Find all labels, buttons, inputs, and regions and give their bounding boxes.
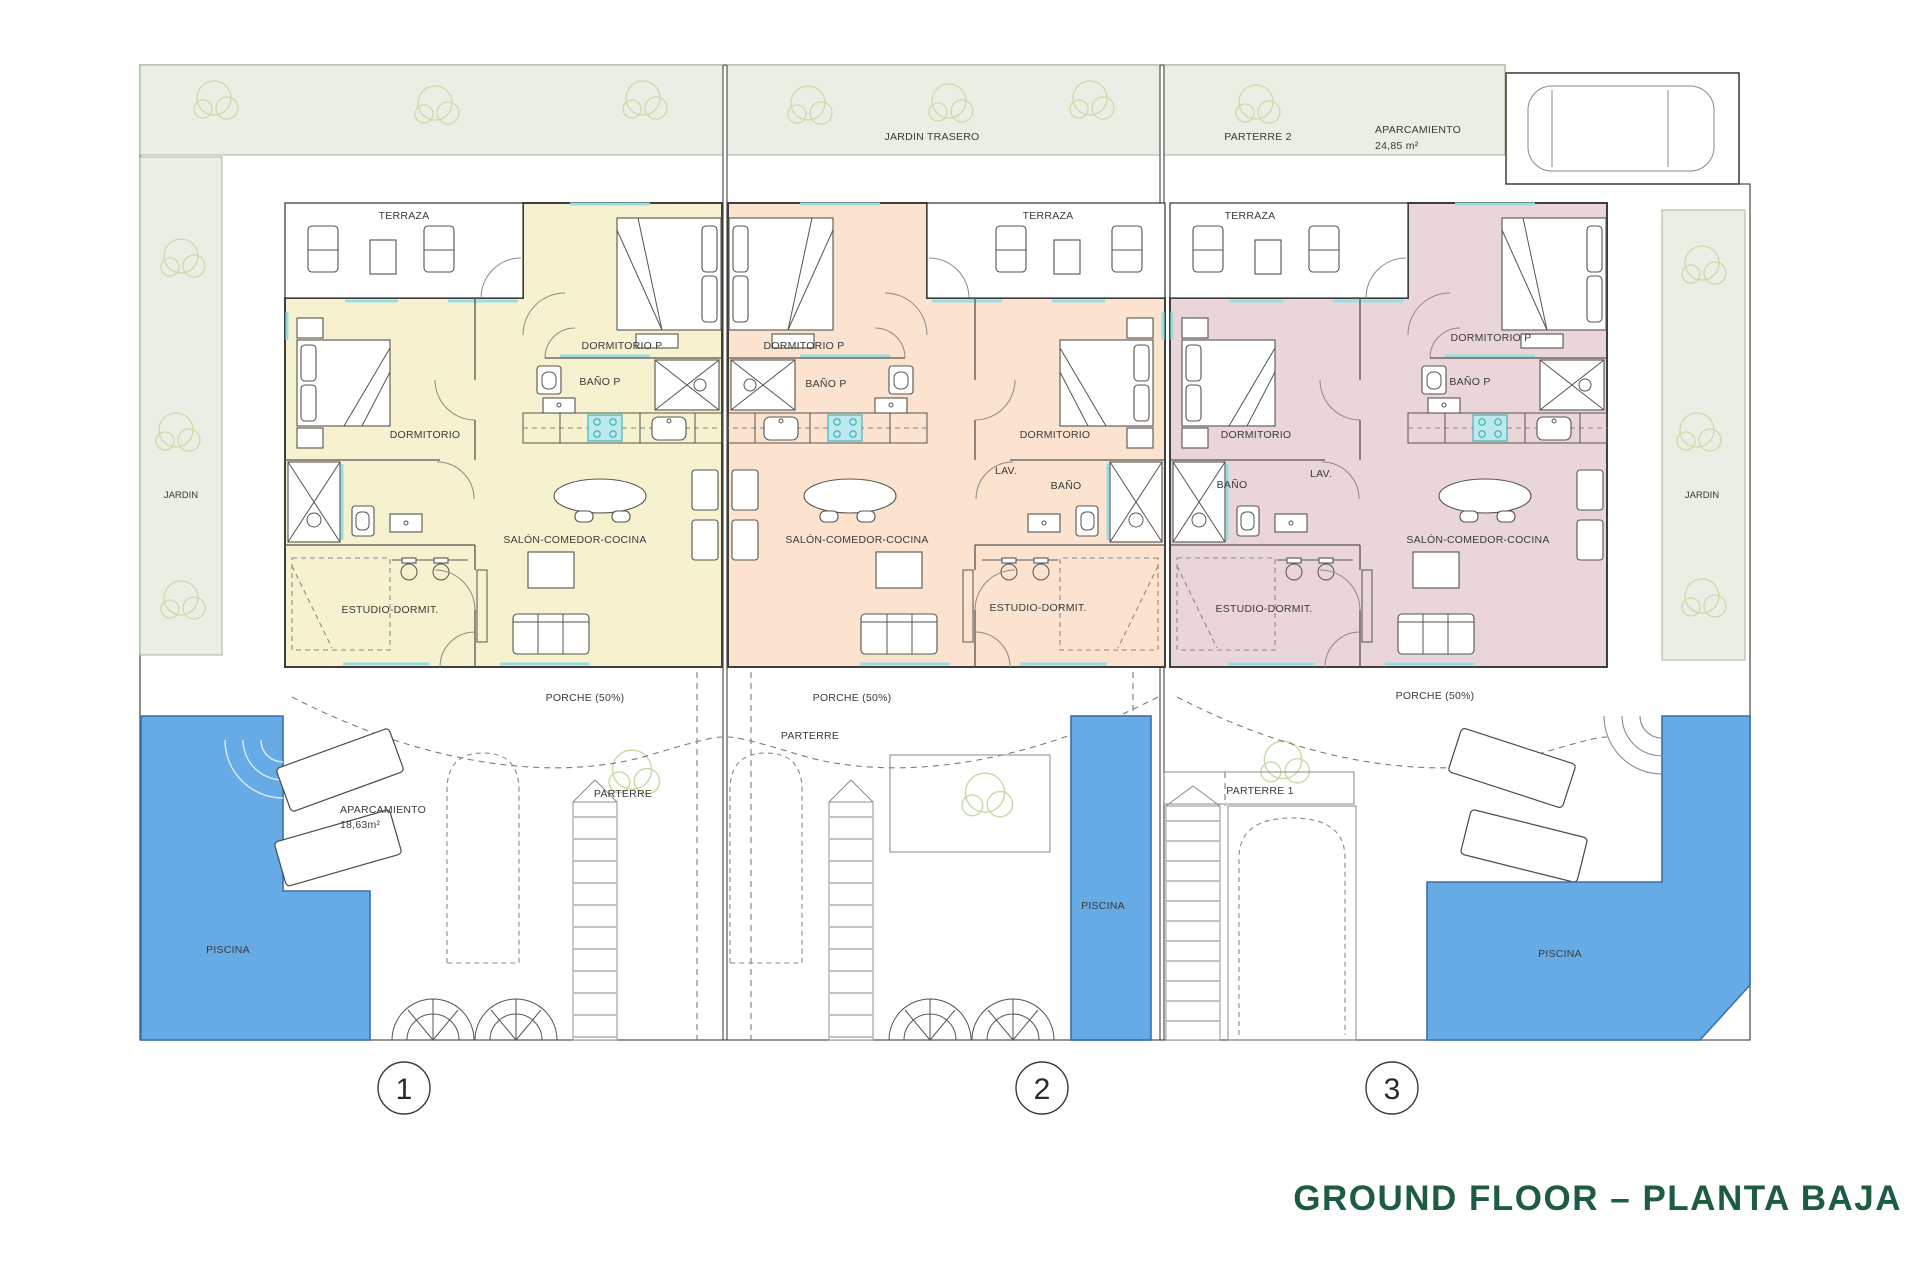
car-outline-icon <box>730 753 802 963</box>
unit-numbers: 1 2 3 <box>378 1062 1418 1114</box>
parterre-bed <box>890 755 1050 852</box>
piscina-label: PISCINA <box>1538 948 1582 960</box>
aparcamiento-1-label: APARCAMIENTO <box>340 804 426 816</box>
bano-p-label: BAÑO P <box>1449 375 1490 388</box>
driveway <box>1228 806 1356 1040</box>
bano-p-label: BAÑO P <box>805 377 846 390</box>
entrance-fan-ornament <box>889 999 1054 1040</box>
porche-label: PORCHE (50%) <box>1396 690 1475 702</box>
dormitorio-label: DORMITORIO <box>1020 429 1091 441</box>
parterre-1-label: PARTERRE 1 <box>1226 785 1293 797</box>
piscina-label: PISCINA <box>1081 900 1125 912</box>
garden-left <box>140 157 222 655</box>
parked-car-icon <box>1448 728 1576 809</box>
salon-label: SALÓN-COMEDOR-COCINA <box>785 533 928 546</box>
unit-2-house <box>728 203 1165 768</box>
unit-2-front <box>730 716 1151 1040</box>
porche-label: PORCHE (50%) <box>546 692 625 704</box>
parterre-2-label: PARTERRE 2 <box>1224 131 1291 143</box>
porche-label: PORCHE (50%) <box>813 692 892 704</box>
estudio-label: ESTUDIO-DORMIT. <box>341 604 438 616</box>
unit-1-number: 1 <box>396 1073 413 1106</box>
bano-label: BAÑO <box>1217 478 1248 491</box>
aparcamiento-3-label: APARCAMIENTO <box>1375 124 1461 136</box>
bano-label: BAÑO <box>1051 479 1082 492</box>
parked-car-icon <box>1460 809 1588 883</box>
estudio-label: ESTUDIO-DORMIT. <box>1215 603 1312 615</box>
terraza-label: TERRAZA <box>1023 210 1074 222</box>
walkway <box>573 802 617 1040</box>
terraza-label: TERRAZA <box>379 210 430 222</box>
lavadero-label: LAV. <box>1310 468 1332 480</box>
dormitorio-p-label: DORMITORIO P <box>1451 332 1532 344</box>
parked-car-icon <box>276 728 404 812</box>
entrance-fan-ornament <box>392 999 557 1040</box>
dormitorio-label: DORMITORIO <box>1221 429 1292 441</box>
parking-spot-3 <box>1506 73 1739 184</box>
salon-label: SALÓN-COMEDOR-COCINA <box>1406 533 1549 546</box>
unit-2-number: 2 <box>1034 1073 1051 1106</box>
estudio-label: ESTUDIO-DORMIT. <box>989 602 1086 614</box>
garden-rear-3 <box>1164 65 1505 155</box>
aparcamiento-3-area: 24,85 m² <box>1375 140 1419 152</box>
aparcamiento-1-area: 18,63m² <box>340 819 381 831</box>
pool-unit-2 <box>1071 716 1151 1040</box>
floor-plan-drawing: JARDIN TRASERO PARTERRE 2 APARCAMIENTO 2… <box>0 0 1920 1280</box>
jardin-trasero-label: JARDIN TRASERO <box>885 131 980 143</box>
car-outline-icon <box>1239 818 1345 1035</box>
terraza-label: TERRAZA <box>1225 210 1276 222</box>
dormitorio-p-label: DORMITORIO P <box>764 340 845 352</box>
walkway <box>829 802 873 1040</box>
dormitorio-label: DORMITORIO <box>390 429 461 441</box>
unit-3-number: 3 <box>1384 1073 1401 1106</box>
car-outline-icon <box>447 753 519 963</box>
parked-car-icon <box>274 809 402 886</box>
jardin-right-label: JARDIN <box>1685 490 1719 501</box>
lavadero-label: LAV. <box>995 465 1017 477</box>
floor-plan-page: JARDIN TRASERO PARTERRE 2 APARCAMIENTO 2… <box>0 0 1920 1280</box>
unit-1-house <box>285 203 722 768</box>
unit-3-front <box>1164 716 1750 1040</box>
front-plot-dashes <box>697 672 1133 1040</box>
jardin-left-label: JARDIN <box>164 490 198 501</box>
parterre-label: PARTERRE <box>594 788 652 800</box>
garden-right <box>1662 210 1745 660</box>
bano-p-label: BAÑO P <box>579 375 620 388</box>
dormitorio-p-label: DORMITORIO P <box>582 340 663 352</box>
salon-label: SALÓN-COMEDOR-COCINA <box>503 533 646 546</box>
piscina-label: PISCINA <box>206 944 250 956</box>
unit-1-front <box>141 716 617 1040</box>
parterre-label: PARTERRE <box>781 730 839 742</box>
page-title: GROUND FLOOR – PLANTA BAJA <box>1293 1179 1902 1218</box>
